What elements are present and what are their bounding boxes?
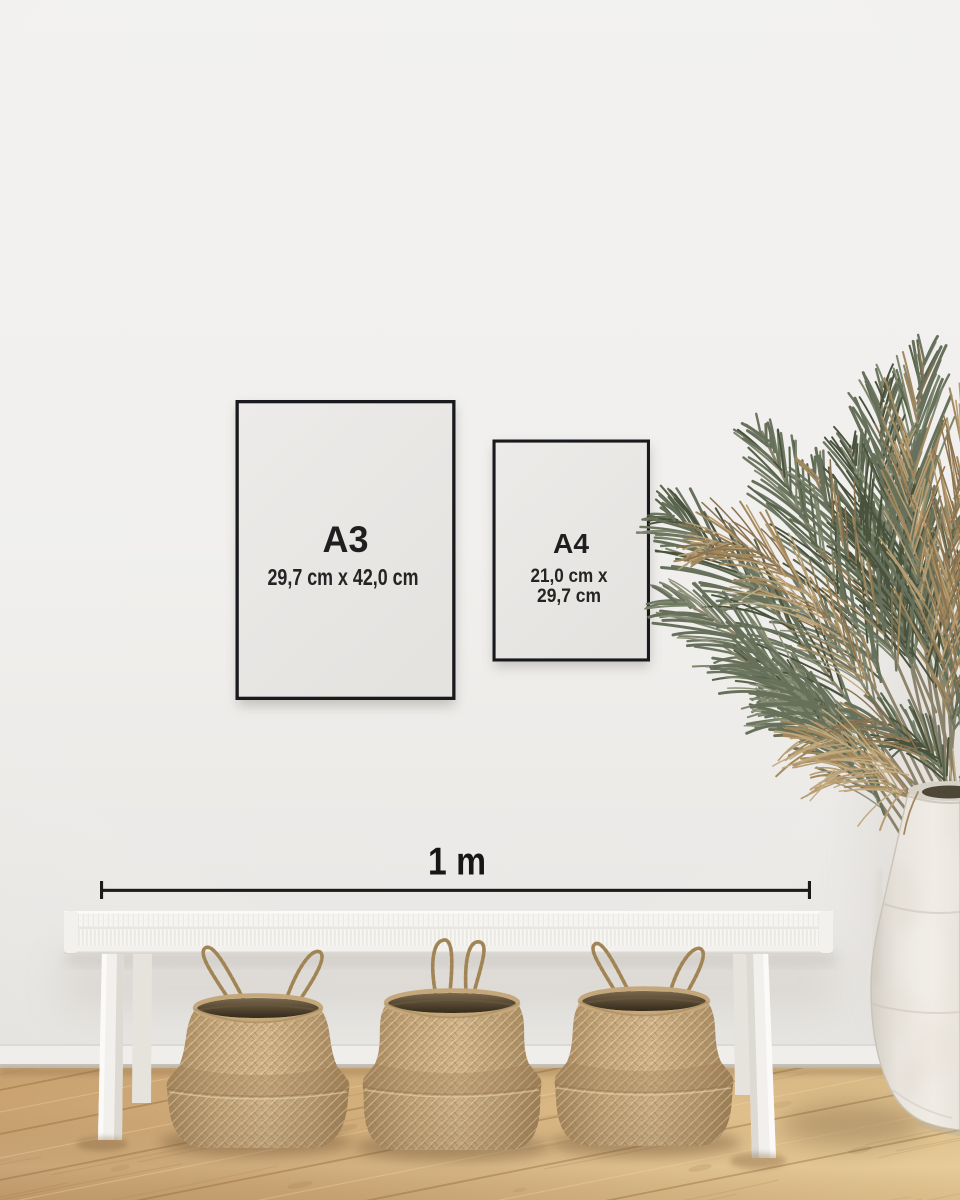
svg-text:29,7 cm: 29,7 cm [537, 586, 601, 607]
svg-text:1 m: 1 m [428, 841, 486, 884]
svg-text:29,7 cm x 42,0 cm: 29,7 cm x 42,0 cm [268, 564, 419, 590]
svg-text:A3: A3 [323, 519, 369, 560]
svg-text:21,0 cm x: 21,0 cm x [531, 566, 608, 587]
svg-text:A4: A4 [553, 528, 590, 559]
